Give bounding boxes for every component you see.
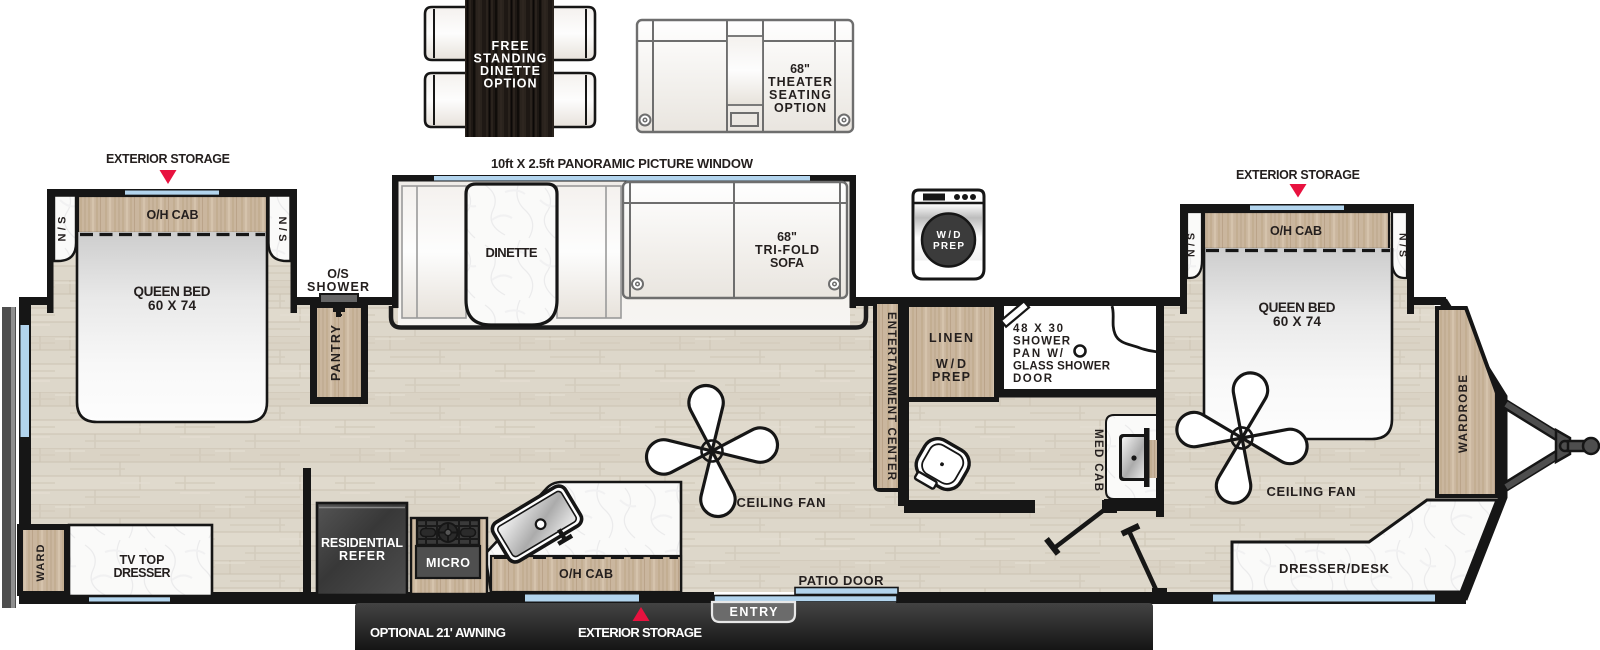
svg-text:QUEEN BED: QUEEN BED <box>1259 300 1336 315</box>
svg-text:60 X 74: 60 X 74 <box>1273 314 1321 329</box>
svg-text:SHOWER: SHOWER <box>307 280 369 294</box>
svg-text:WARD: WARD <box>35 544 47 581</box>
svg-text:WARDROBE: WARDROBE <box>1458 375 1470 453</box>
svg-text:PATIO DOOR: PATIO DOOR <box>799 573 885 588</box>
svg-text:N/S: N/S <box>276 217 288 242</box>
svg-text:10ft X 2.5ft PANORAMIC PICTURE: 10ft X 2.5ft PANORAMIC PICTURE WINDOW <box>491 156 754 171</box>
svg-text:N/S: N/S <box>1186 233 1198 257</box>
svg-text:OPTIONAL 21' AWNING: OPTIONAL 21' AWNING <box>370 625 506 640</box>
svg-text:EXTERIOR STORAGE: EXTERIOR STORAGE <box>578 625 702 640</box>
svg-text:TV TOP: TV TOP <box>120 553 165 567</box>
svg-text:OPTION: OPTION <box>774 101 826 115</box>
svg-text:W/D: W/D <box>936 357 966 371</box>
svg-text:EXTERIOR STORAGE: EXTERIOR STORAGE <box>1236 168 1360 182</box>
svg-text:N/S: N/S <box>1397 233 1409 257</box>
svg-text:RESIDENTIAL: RESIDENTIAL <box>321 536 403 550</box>
svg-text:O/H CAB: O/H CAB <box>147 208 199 222</box>
svg-text:O/S: O/S <box>327 267 349 281</box>
svg-text:MICRO: MICRO <box>426 556 470 570</box>
svg-text:PREP: PREP <box>933 241 964 252</box>
svg-text:DINETTE: DINETTE <box>486 245 538 260</box>
svg-text:QUEEN BED: QUEEN BED <box>134 284 211 299</box>
svg-text:O/H CAB: O/H CAB <box>1270 224 1322 238</box>
svg-text:DOOR: DOOR <box>1013 373 1053 385</box>
svg-text:EXTERIOR STORAGE: EXTERIOR STORAGE <box>106 152 230 166</box>
svg-text:N/S: N/S <box>57 217 69 242</box>
svg-text:TRI-FOLD: TRI-FOLD <box>755 243 819 257</box>
svg-text:SHOWER: SHOWER <box>1013 336 1071 348</box>
svg-text:SEATING: SEATING <box>769 88 831 102</box>
svg-text:REFER: REFER <box>339 549 385 563</box>
svg-text:O/H CAB: O/H CAB <box>559 567 613 581</box>
svg-text:ENTERTAINMENT CENTER: ENTERTAINMENT CENTER <box>885 312 897 481</box>
svg-text:DRESSER: DRESSER <box>114 566 171 580</box>
svg-text:CEILING FAN: CEILING FAN <box>737 495 826 510</box>
svg-text:DRESSER/DESK: DRESSER/DESK <box>1279 561 1390 576</box>
svg-text:ENTRY: ENTRY <box>730 605 779 619</box>
svg-text:68": 68" <box>790 62 810 76</box>
svg-text:W/D: W/D <box>937 230 961 241</box>
svg-text:LINEN: LINEN <box>929 331 973 345</box>
svg-text:68": 68" <box>777 230 797 244</box>
svg-text:OPTION: OPTION <box>484 77 537 91</box>
svg-text:CEILING FAN: CEILING FAN <box>1267 484 1356 499</box>
svg-text:PANTRY: PANTRY <box>329 324 343 381</box>
svg-text:GLASS SHOWER: GLASS SHOWER <box>1013 361 1111 373</box>
svg-text:60 X 74: 60 X 74 <box>148 298 196 313</box>
svg-text:THEATER: THEATER <box>768 75 832 89</box>
svg-text:SOFA: SOFA <box>770 256 804 270</box>
